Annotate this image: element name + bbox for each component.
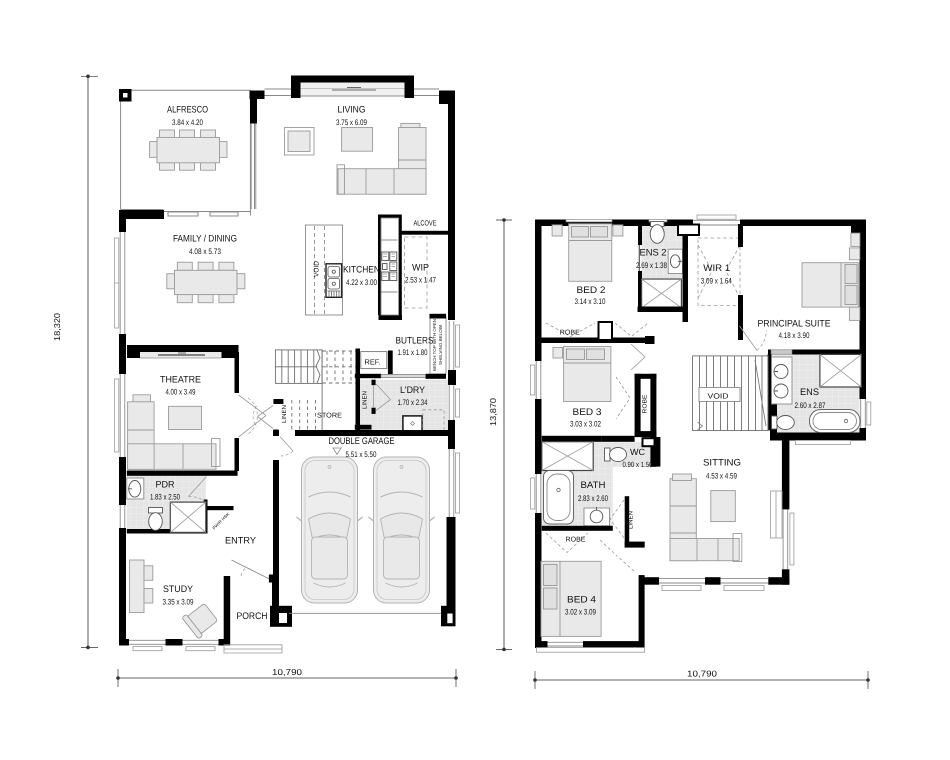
svg-text:BUTLERS: BUTLERS xyxy=(396,336,434,347)
svg-text:LINEN: LINEN xyxy=(281,405,288,423)
svg-text:SITTING: SITTING xyxy=(703,458,741,469)
svg-text:BATH: BATH xyxy=(581,480,606,491)
svg-text:4.22 x 3.00: 4.22 x 3.00 xyxy=(346,278,377,287)
svg-text:SHELVING BELOW: SHELVING BELOW xyxy=(438,325,443,365)
svg-text:0.90 x 1.50: 0.90 x 1.50 xyxy=(623,460,653,469)
svg-text:18,320: 18,320 xyxy=(52,313,62,341)
svg-text:L'DRY: L'DRY xyxy=(400,385,426,396)
svg-text:4.00 x 3.49: 4.00 x 3.49 xyxy=(166,388,196,397)
svg-text:THEATRE: THEATRE xyxy=(160,375,201,386)
svg-text:3.09 x 1.64: 3.09 x 1.64 xyxy=(701,277,732,286)
svg-text:LINEN: LINEN xyxy=(628,511,635,529)
svg-text:3.84 x 4.20: 3.84 x 4.20 xyxy=(172,118,203,127)
svg-text:BED 2: BED 2 xyxy=(577,285,606,296)
svg-text:BENCH TOP WITH OPEN: BENCH TOP WITH OPEN xyxy=(432,319,437,371)
svg-text:WC: WC xyxy=(630,447,645,457)
svg-text:KITCHEN: KITCHEN xyxy=(343,265,380,276)
svg-text:VOID: VOID xyxy=(314,261,321,277)
svg-text:WIP: WIP xyxy=(412,263,429,274)
svg-text:STUDY: STUDY xyxy=(163,584,194,595)
svg-text:ROBE: ROBE xyxy=(566,537,586,544)
svg-text:4.08 x 5.73: 4.08 x 5.73 xyxy=(189,247,221,256)
svg-text:3.03 x 3.02: 3.03 x 3.02 xyxy=(570,420,601,429)
svg-text:3.75 x 6.09: 3.75 x 6.09 xyxy=(336,118,367,127)
svg-text:BED 4: BED 4 xyxy=(567,595,596,606)
svg-text:ENTRY: ENTRY xyxy=(225,536,257,547)
svg-text:5.51 x 5.50: 5.51 x 5.50 xyxy=(346,450,377,459)
svg-text:BED 3: BED 3 xyxy=(573,407,602,418)
svg-text:1.91 x 1.80: 1.91 x 1.80 xyxy=(398,348,428,357)
svg-text:DOUBLE GARAGE: DOUBLE GARAGE xyxy=(329,436,395,447)
svg-text:10,790: 10,790 xyxy=(272,667,302,677)
svg-text:VOID: VOID xyxy=(708,392,730,401)
svg-text:PDR: PDR xyxy=(156,480,175,491)
svg-text:3.14 x 3.10: 3.14 x 3.10 xyxy=(575,297,606,306)
svg-text:ALFRESCO: ALFRESCO xyxy=(167,105,208,116)
svg-text:FAMILY / DINING: FAMILY / DINING xyxy=(173,234,237,245)
svg-text:4.53 x 4.59: 4.53 x 4.59 xyxy=(706,472,737,481)
svg-text:PRINCIPAL SUITE: PRINCIPAL SUITE xyxy=(758,319,831,330)
svg-text:2.53 x 1.47: 2.53 x 1.47 xyxy=(405,276,436,285)
svg-text:LIVING: LIVING xyxy=(338,105,366,116)
svg-text:ENS: ENS xyxy=(800,387,819,398)
svg-text:ROBE: ROBE xyxy=(560,330,580,337)
svg-text:3.02 x 3.09: 3.02 x 3.09 xyxy=(565,608,596,617)
svg-text:2.69 x 1.38: 2.69 x 1.38 xyxy=(636,261,667,270)
svg-text:13,870: 13,870 xyxy=(488,398,498,426)
svg-text:ROBE: ROBE xyxy=(641,395,648,414)
svg-text:1.70 x 2.34: 1.70 x 2.34 xyxy=(398,398,428,407)
svg-text:PORCH: PORCH xyxy=(237,611,268,622)
svg-text:LINEN: LINEN xyxy=(362,391,369,409)
svg-text:2.60 x 2.87: 2.60 x 2.87 xyxy=(795,401,826,410)
svg-text:1.83 x 2.50: 1.83 x 2.50 xyxy=(150,493,180,502)
svg-text:10,790: 10,790 xyxy=(687,669,717,679)
svg-text:3.35 x 3.09: 3.35 x 3.09 xyxy=(163,598,194,607)
svg-text:ENS 2: ENS 2 xyxy=(640,248,667,259)
svg-text:4.18 x 3.90: 4.18 x 3.90 xyxy=(779,331,810,340)
svg-text:2.83 x 2.60: 2.83 x 2.60 xyxy=(578,494,608,503)
svg-text:WIR 1: WIR 1 xyxy=(703,263,730,274)
svg-text:STORE: STORE xyxy=(317,413,342,420)
svg-text:REF.: REF. xyxy=(365,358,381,367)
svg-text:ALCOVE: ALCOVE xyxy=(414,219,437,228)
